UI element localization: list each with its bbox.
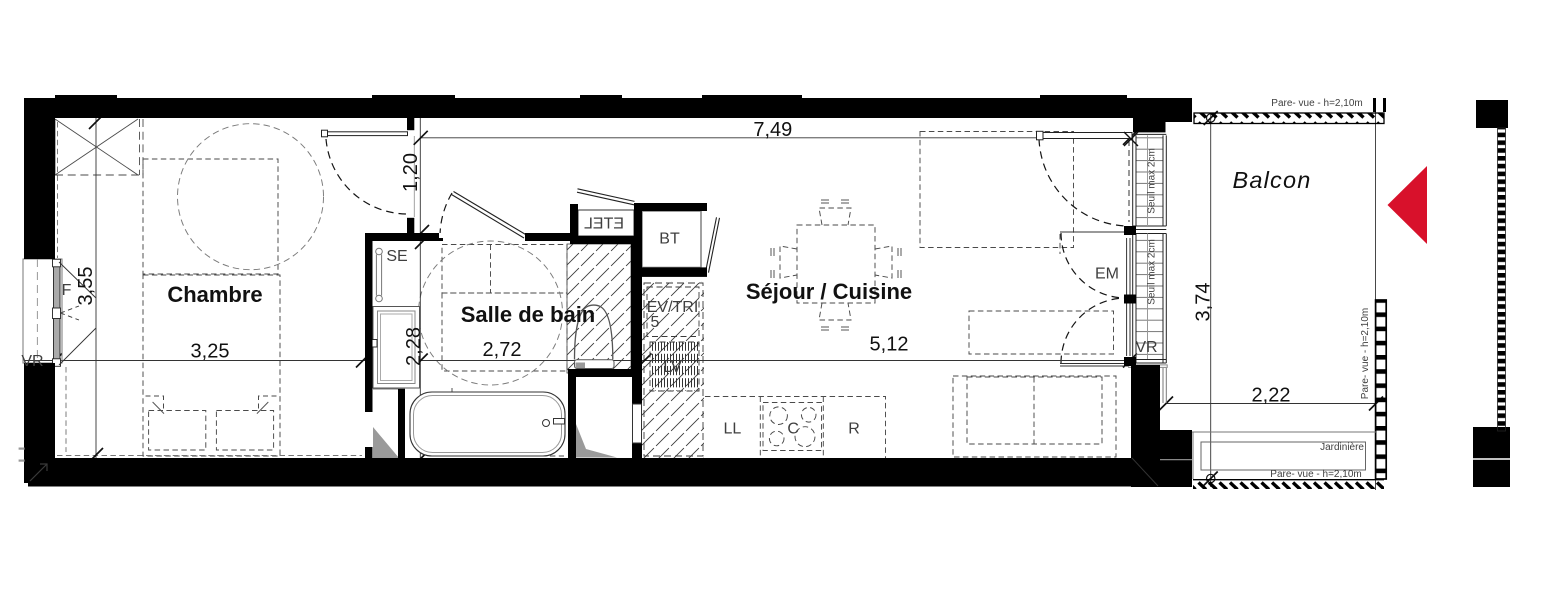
svg-text:F: F — [62, 282, 72, 299]
svg-text:Pare- vue - h=2,10m: Pare- vue - h=2,10m — [1360, 308, 1371, 399]
svg-text:Balcon: Balcon — [1232, 167, 1311, 193]
svg-text:5: 5 — [651, 314, 660, 331]
svg-text:2,22: 2,22 — [1252, 385, 1291, 407]
svg-text:ETEL: ETEL — [584, 216, 624, 233]
svg-text:LV: LV — [663, 359, 682, 376]
svg-text:1,20: 1,20 — [400, 153, 422, 192]
svg-text:Pare- vue - h=2,10m: Pare- vue - h=2,10m — [1270, 469, 1361, 480]
svg-text:2,28: 2,28 — [403, 327, 425, 366]
svg-text:Salle de bain: Salle de bain — [461, 302, 596, 327]
svg-text:EM: EM — [1095, 266, 1119, 283]
svg-text:3,25: 3,25 — [191, 341, 230, 363]
svg-text:Séjour / Cuisine: Séjour / Cuisine — [746, 279, 912, 304]
svg-text:3,55: 3,55 — [75, 267, 97, 306]
svg-text:2,72: 2,72 — [483, 339, 522, 361]
svg-text:Pare- vue - h=2,10m: Pare- vue - h=2,10m — [1271, 98, 1362, 109]
svg-text:BT: BT — [659, 231, 680, 248]
svg-text:3,74: 3,74 — [1193, 283, 1215, 322]
svg-text:7,49: 7,49 — [753, 119, 792, 141]
svg-text:VR: VR — [21, 353, 43, 370]
svg-text:LL: LL — [724, 421, 742, 438]
svg-text:Seuil max 2cm: Seuil max 2cm — [1147, 148, 1158, 214]
svg-text:Seuil max 2cm: Seuil max 2cm — [1147, 239, 1158, 305]
svg-text:R: R — [848, 421, 860, 438]
svg-text:C: C — [787, 421, 799, 438]
svg-text:SE: SE — [386, 248, 407, 265]
svg-text:Chambre: Chambre — [167, 282, 262, 307]
svg-text:5,12: 5,12 — [870, 334, 909, 356]
svg-text:VR: VR — [1135, 339, 1157, 356]
svg-text:Jardinière: Jardinière — [1320, 442, 1364, 453]
